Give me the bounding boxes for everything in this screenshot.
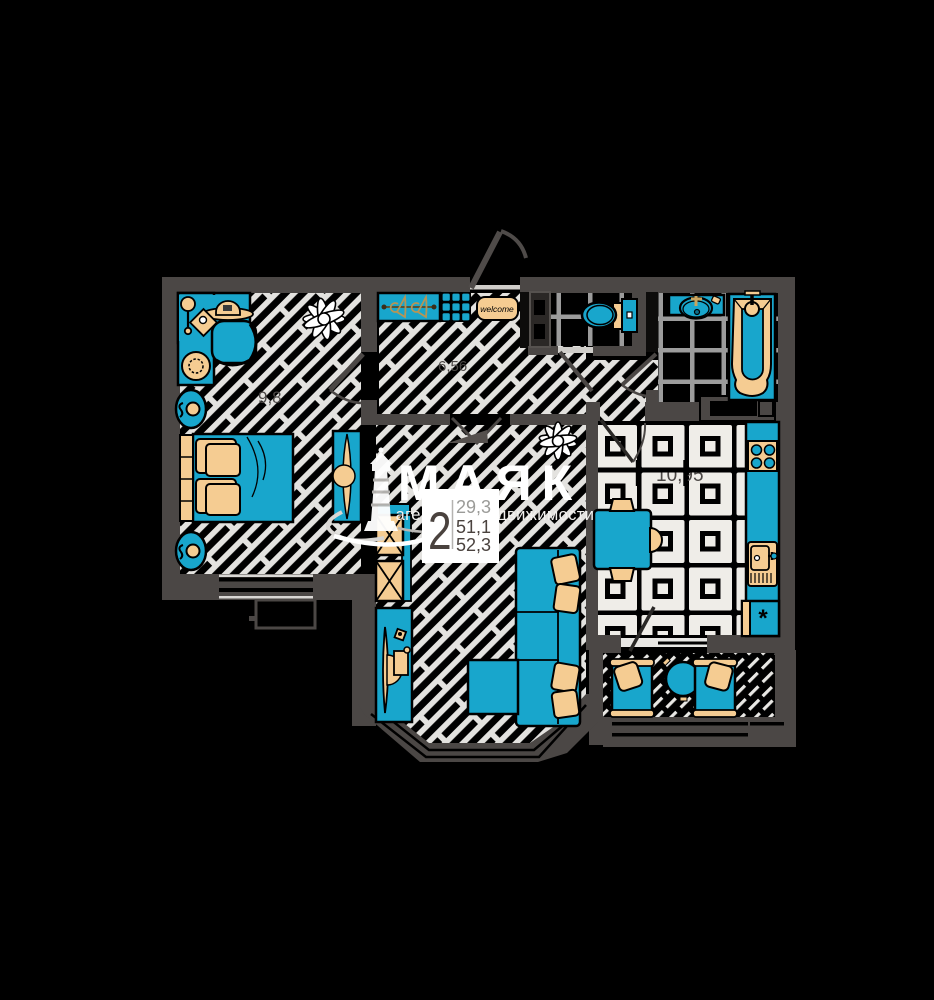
svg-text:*: * (758, 605, 768, 632)
svg-text:51,1: 51,1 (456, 517, 491, 537)
svg-text:52,3: 52,3 (456, 535, 491, 555)
svg-text:29,3: 29,3 (456, 497, 491, 517)
svg-text:2: 2 (428, 503, 452, 562)
svg-text:welcome: welcome (480, 304, 514, 314)
svg-text:9,8: 9,8 (258, 388, 282, 407)
svg-text:6,56: 6,56 (438, 358, 467, 375)
